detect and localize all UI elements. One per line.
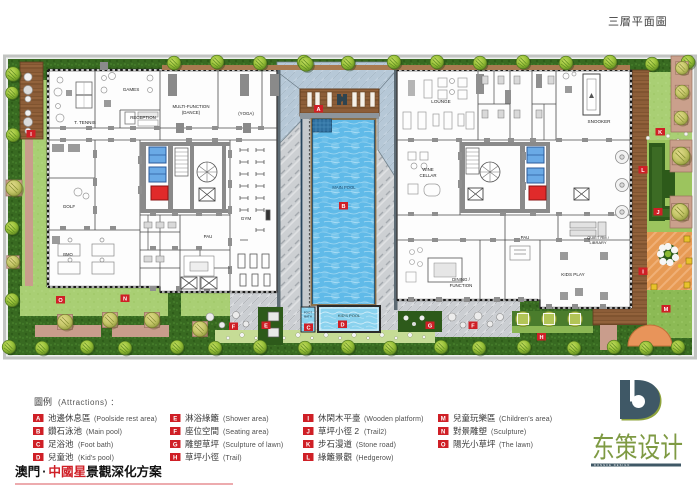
svg-text:M: M	[441, 417, 446, 423]
svg-text:K: K	[658, 130, 662, 136]
svg-text:K: K	[306, 443, 311, 449]
svg-text:(Wooden platform): (Wooden platform)	[364, 416, 424, 423]
svg-text:O: O	[441, 443, 446, 449]
svg-text:草坪小徑 2: 草坪小徑 2	[318, 426, 359, 436]
svg-text:CELLAR: CELLAR	[419, 173, 436, 178]
svg-text:东策设计: 东策设计	[592, 432, 683, 463]
svg-text:N: N	[441, 430, 445, 436]
svg-text:三層平面圖: 三層平面圖	[608, 15, 668, 28]
svg-text:(Hedgerow): (Hedgerow)	[356, 455, 394, 462]
svg-text:E: E	[264, 324, 268, 330]
svg-text:(Foot bath): (Foot bath)	[78, 442, 113, 449]
svg-text:D: D	[340, 323, 344, 329]
svg-text:DONGCE DESIGN: DONGCE DESIGN	[594, 463, 630, 467]
svg-text:鑽石泳池: 鑽石泳池	[48, 426, 83, 436]
svg-text:BATH: BATH	[304, 315, 312, 319]
svg-text:F: F	[173, 430, 177, 436]
svg-text:L: L	[641, 168, 645, 174]
svg-text:GYM: GYM	[241, 216, 252, 221]
svg-text:G: G	[428, 324, 432, 330]
svg-text:B: B	[36, 430, 41, 436]
svg-text:池邊休息區: 池邊休息區	[48, 413, 91, 423]
svg-text:座位空間: 座位空間	[185, 426, 219, 436]
svg-text:兒童池: 兒童池	[48, 452, 74, 462]
svg-text:(DANCE): (DANCE)	[182, 110, 201, 115]
svg-text:GAMES: GAMES	[123, 87, 140, 92]
svg-text:G: G	[173, 443, 178, 449]
svg-text:(Main pool): (Main pool)	[86, 429, 122, 436]
svg-text:T. TENNIS: T. TENNIS	[74, 120, 96, 125]
svg-text:N: N	[123, 297, 127, 303]
svg-text:(Trail2): (Trail2)	[364, 429, 387, 436]
svg-text:草坪小徑: 草坪小徑	[185, 452, 220, 462]
svg-text:J: J	[656, 210, 659, 216]
svg-text:L: L	[306, 456, 310, 462]
svg-text:F: F	[232, 325, 236, 331]
svg-text:足浴池: 足浴池	[48, 439, 74, 449]
svg-text:步石漫道: 步石漫道	[318, 439, 353, 449]
svg-text:A: A	[316, 107, 320, 113]
svg-text:PAU: PAU	[204, 234, 213, 239]
svg-text:M: M	[664, 307, 669, 313]
svg-text:(YOGA): (YOGA)	[238, 111, 254, 116]
svg-text:(Sculpture of lawn): (Sculpture of lawn)	[223, 442, 283, 449]
svg-text:(Kid's pool): (Kid's pool)	[78, 455, 114, 462]
svg-text:WINE: WINE	[422, 167, 434, 172]
svg-text:J: J	[307, 430, 310, 436]
svg-text:E: E	[173, 417, 177, 423]
svg-text:陽光小草坪: 陽光小草坪	[453, 439, 496, 449]
svg-text:KIDS PLAY: KIDS PLAY	[561, 272, 584, 277]
svg-text:C: C	[36, 443, 41, 449]
svg-text:綠籬景觀: 綠籬景觀	[318, 452, 353, 462]
svg-text:(Poolside rest area): (Poolside rest area)	[94, 416, 157, 423]
svg-text:D: D	[36, 456, 41, 462]
svg-text:MULTI-FUNCTION: MULTI-FUNCTION	[173, 104, 210, 109]
svg-text:(Seating area): (Seating area)	[223, 429, 269, 436]
svg-text:淋浴綠籬: 淋浴綠籬	[185, 413, 220, 423]
svg-text:(Sculpture): (Sculpture)	[491, 429, 526, 436]
svg-text:LIBRARY: LIBRARY	[589, 240, 606, 245]
svg-text:澳門·中國星景觀深化方案: 澳門·中國星景觀深化方案	[15, 464, 162, 479]
svg-text:FUNCTION: FUNCTION	[450, 283, 473, 288]
svg-text:PAU: PAU	[521, 235, 530, 240]
svg-text:F: F	[471, 324, 475, 330]
svg-text:兒童玩樂區: 兒童玩樂區	[453, 413, 496, 423]
svg-text:H: H	[173, 456, 177, 462]
svg-text:(Stone road): (Stone road)	[356, 442, 396, 449]
svg-text:O: O	[58, 298, 63, 304]
svg-text:雕塑草坪: 雕塑草坪	[185, 439, 220, 449]
svg-text:A: A	[36, 417, 41, 423]
svg-text:(Children's area): (Children's area)	[499, 416, 552, 423]
svg-text:(Shower area): (Shower area)	[223, 416, 269, 423]
svg-text:MAIN POOL: MAIN POOL	[332, 185, 356, 190]
svg-text:圖例: 圖例	[34, 396, 52, 407]
svg-text:(Trail): (Trail)	[223, 455, 242, 462]
svg-text:SNOOKER: SNOOKER	[588, 119, 612, 124]
svg-text:對景雕塑: 對景雕塑	[453, 426, 488, 436]
svg-text:RECEPTION: RECEPTION	[130, 115, 156, 120]
svg-text:(The lawn): (The lawn)	[499, 442, 533, 449]
svg-text:KID'S POOL: KID'S POOL	[338, 313, 361, 318]
svg-text:休閑木平臺: 休閑木平臺	[318, 413, 361, 423]
svg-text:(Attractions) ：: (Attractions) ：	[58, 398, 119, 407]
svg-text:DINING /: DINING /	[452, 277, 471, 282]
svg-text:LOUNGE: LOUNGE	[431, 99, 450, 104]
svg-text:C: C	[306, 326, 310, 332]
svg-text:B: B	[341, 204, 345, 210]
svg-text:BMO: BMO	[63, 252, 73, 257]
svg-text:GOLF: GOLF	[63, 204, 76, 209]
svg-text:H: H	[539, 335, 543, 341]
